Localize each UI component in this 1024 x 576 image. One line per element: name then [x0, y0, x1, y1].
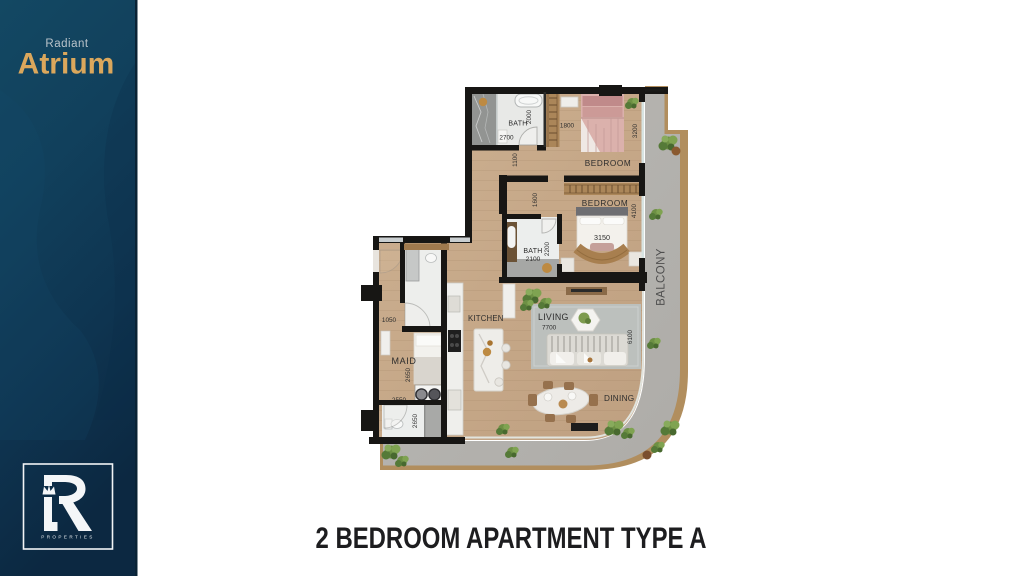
svg-text:2 BEDROOM APARTMENT TYPE A: 2 BEDROOM APARTMENT TYPE A [316, 522, 707, 555]
svg-text:BATH: BATH [508, 121, 527, 128]
svg-text:DINING: DINING [604, 394, 634, 403]
svg-text:2100: 2100 [526, 256, 541, 263]
svg-text:3200: 3200 [632, 123, 639, 138]
svg-text:4100: 4100 [631, 203, 638, 218]
svg-text:KITCHEN: KITCHEN [468, 314, 504, 323]
svg-text:2650: 2650 [412, 413, 419, 428]
svg-text:1600: 1600 [532, 192, 539, 207]
svg-text:3150: 3150 [594, 233, 610, 242]
svg-text:BALCONY: BALCONY [656, 248, 668, 306]
svg-text:2000: 2000 [526, 109, 533, 124]
svg-text:1050: 1050 [382, 317, 397, 324]
svg-text:BEDROOM: BEDROOM [582, 199, 629, 208]
svg-text:PROPERTIES: PROPERTIES [41, 535, 95, 540]
svg-text:BATH: BATH [523, 248, 542, 255]
svg-text:BEDROOM: BEDROOM [585, 159, 632, 168]
svg-text:2650: 2650 [405, 367, 412, 382]
svg-text:7700: 7700 [542, 325, 557, 332]
svg-text:Atrium: Atrium [18, 48, 115, 81]
svg-text:LIVING: LIVING [538, 312, 569, 322]
svg-text:1800: 1800 [560, 123, 575, 130]
svg-text:6100: 6100 [627, 329, 634, 344]
svg-text:2700: 2700 [499, 135, 514, 142]
svg-text:MAID: MAID [392, 356, 417, 366]
svg-text:1100: 1100 [512, 153, 519, 167]
svg-text:2200: 2200 [544, 241, 551, 256]
